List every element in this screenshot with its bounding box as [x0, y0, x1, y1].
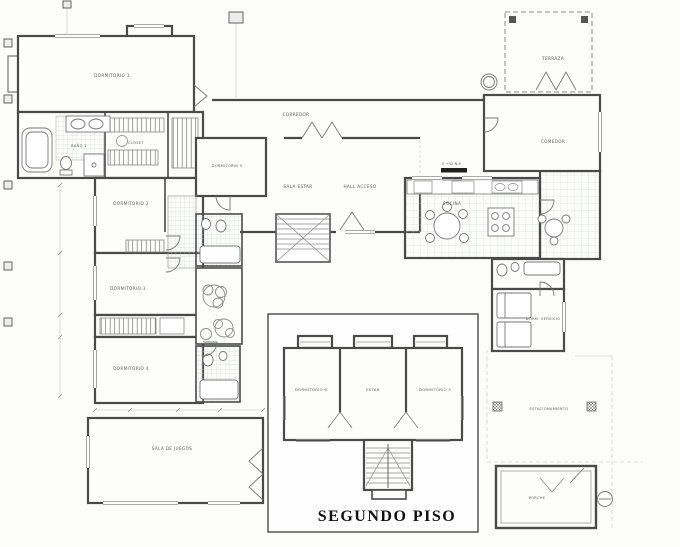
column-marker — [509, 16, 516, 23]
column-marker — [581, 16, 588, 23]
room-label-sala-estar: SALA ESTAR — [283, 184, 312, 189]
room-label-dorm-servicio: DORM. SERVICIO — [526, 317, 560, 321]
bathtub — [524, 262, 560, 275]
closet-shelf — [160, 318, 184, 334]
room-label-estacionamiento: ESTACIONAMIENTO — [529, 407, 568, 411]
elevation-note: E +42 N.P. — [442, 162, 462, 166]
room-label-bano1: BAÑO 1 — [71, 143, 87, 148]
vanity-sinks — [66, 116, 110, 132]
room-label-dormitorio4: DORMITORIO 4 — [113, 366, 149, 371]
floor-plan-sheet: DORMITORIO 1 BAÑO 1 CLOSET DORMITORIO 2 … — [0, 0, 680, 547]
service-wing — [492, 259, 564, 351]
room-label-sala-de-juegos: SALA DE JUEGOS — [152, 446, 192, 451]
segundo-piso-inset: DORMITORIO 6 ESTAR DORMITORIO 5 SEGUNDO … — [268, 314, 478, 532]
inset-label-dormitorio5: DORMITORIO 5 — [419, 387, 452, 392]
room-label-dormitorio3: DORMITORIO 3 — [110, 286, 146, 291]
column-marker — [493, 402, 502, 411]
comedor-block — [484, 95, 600, 171]
sink — [219, 352, 227, 361]
shower — [84, 154, 104, 176]
floor-plan-canvas: DORMITORIO 1 BAÑO 1 CLOSET DORMITORIO 2 … — [0, 0, 680, 547]
step-bar — [441, 168, 467, 173]
sala-de-juegos-block — [88, 418, 263, 503]
inset-label-dormitorio6: DORMITORIO 6 — [295, 387, 328, 392]
room-label-closet: CLOSET — [128, 141, 144, 145]
closet-hanger-rail — [110, 118, 164, 132]
sink — [202, 219, 211, 230]
bathtub — [200, 246, 240, 263]
column-marker — [587, 402, 596, 411]
room-label-dormitorio5: DORMITORIO 5 — [212, 164, 243, 168]
room-label-hall-acceso: HALL ACCESO — [343, 184, 376, 189]
kitchen-sink — [492, 181, 522, 193]
room-label-corredor: CORREDOR — [283, 112, 310, 117]
closet-hanger-rail — [126, 240, 164, 252]
closet-hanger-rail — [100, 318, 156, 334]
toilet — [497, 264, 507, 276]
dormitorio1-block — [8, 26, 194, 112]
main-staircase — [276, 214, 330, 262]
room-label-cocina: COCINA — [443, 201, 461, 206]
toilet — [216, 220, 226, 232]
room-label-porche: PORCHE — [529, 496, 546, 500]
bathtub — [200, 380, 238, 399]
inset-staircase — [364, 440, 412, 499]
inset-title: SEGUNDO PISO — [318, 508, 456, 525]
room-label-terraza: TERRAZA — [541, 56, 564, 61]
bathtub — [22, 128, 52, 172]
closet-hanger-rail — [172, 118, 198, 168]
bano1-closet-block — [18, 112, 203, 178]
fireplace — [8, 56, 18, 92]
toilet — [60, 157, 72, 176]
service-patio-block — [538, 171, 600, 259]
porche-block — [496, 466, 596, 528]
closet-hanger-rail — [108, 150, 158, 165]
closet-mirror — [117, 136, 128, 147]
appliance — [414, 181, 432, 193]
appliance — [452, 181, 474, 193]
inset-label-estar: ESTAR — [366, 387, 380, 392]
room-label-comedor: COMEDOR — [541, 139, 565, 144]
stove — [488, 208, 514, 236]
cocina-block — [405, 178, 540, 258]
room-label-dormitorio1: DORMITORIO 1 — [94, 73, 130, 78]
sink — [511, 263, 519, 272]
room-label-dormitorio2: DORMITORIO 2 — [113, 201, 149, 206]
